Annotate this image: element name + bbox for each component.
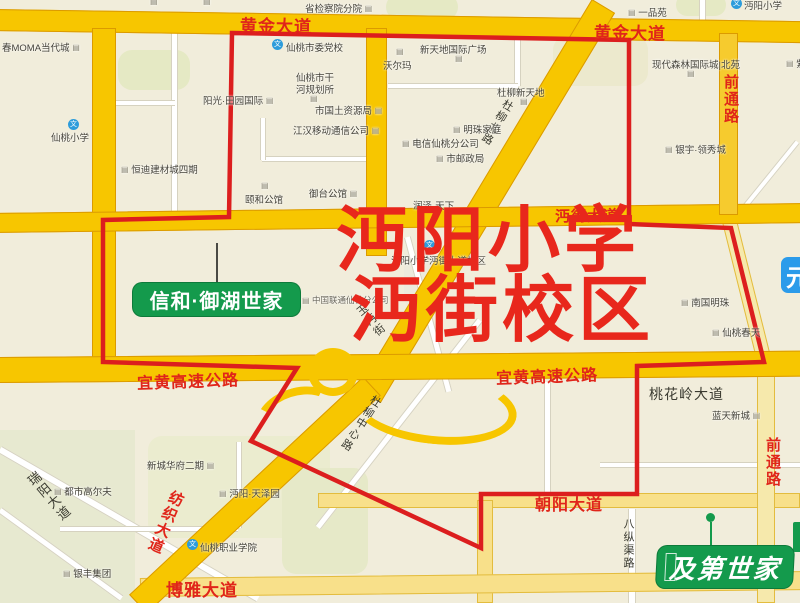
poi-label: ▤ 紫 bbox=[786, 56, 800, 70]
poi-label: 沔阳小学 bbox=[744, 0, 782, 12]
poi-label: 阳光·田园国际 ▤ bbox=[203, 93, 273, 107]
district-title-line2: 沔街校区 bbox=[350, 276, 654, 346]
road-label-boya-avenue: 博雅大道 bbox=[166, 576, 238, 601]
building-icon: ▤ bbox=[436, 155, 444, 163]
poi-label: 仙桃小学 bbox=[51, 130, 89, 144]
partial-blue-badge: 元 bbox=[781, 257, 800, 293]
road-label-huangjin-avenue: 黄金大道 bbox=[240, 11, 312, 37]
poi-label: 御台公馆 ▤ bbox=[309, 186, 357, 200]
road-label-qiantong-road-south: 前通路 bbox=[762, 437, 783, 488]
logo-seal bbox=[664, 553, 676, 581]
school-icon: 文 bbox=[187, 539, 198, 550]
poi-label: ▤ 沔阳·天泽园 bbox=[219, 486, 280, 500]
building-icon: ▤ bbox=[365, 5, 373, 13]
poi-label: ▤ bbox=[150, 0, 158, 8]
poi-label: ▤ bbox=[455, 54, 463, 65]
poi-label: ▤ 银宇·领秀城 bbox=[665, 142, 726, 156]
green-area bbox=[118, 50, 190, 90]
badge-pointer-line bbox=[216, 243, 218, 284]
building-icon: ▤ bbox=[786, 60, 794, 68]
poi-label: 仙桃市委党校 bbox=[286, 40, 343, 54]
building-icon: ▤ bbox=[203, 0, 211, 6]
partial-green-box bbox=[793, 522, 800, 552]
building-icon: ▤ bbox=[681, 299, 689, 307]
poi-label: 新城华府二期 ▤ bbox=[147, 458, 214, 472]
building-icon: ▤ bbox=[712, 329, 720, 337]
poi-label: 仙桃职业学院 bbox=[200, 540, 257, 554]
minor-road bbox=[113, 100, 175, 106]
poi-label: ▤ 市邮政局 bbox=[436, 151, 484, 165]
poi-label: ▤ 电信仙桃分公司 bbox=[402, 136, 479, 150]
building-icon: ▤ bbox=[520, 98, 528, 106]
poi-label: 春MOMA当代城 ▤ bbox=[2, 40, 80, 54]
building-icon: ▤ bbox=[261, 182, 269, 190]
poi-label: ▤ bbox=[396, 47, 404, 58]
building-icon: ▤ bbox=[628, 9, 636, 17]
building-icon: ▤ bbox=[753, 412, 761, 420]
vertical-road-west bbox=[92, 28, 116, 378]
building-icon: ▤ bbox=[375, 107, 383, 115]
road-qiantong-south bbox=[722, 218, 772, 365]
poi-label: 新天地国际广场 bbox=[420, 42, 487, 56]
building-icon: ▤ bbox=[63, 570, 71, 578]
road-label-yihuang-expressway: 宜黄高速公路 bbox=[137, 366, 240, 394]
road-label-chaoyang-avenue: 朝阳大道 bbox=[535, 491, 603, 515]
marker-line bbox=[710, 522, 712, 546]
poi-label: ▤ 都市高尔夫 bbox=[54, 484, 112, 498]
poi-label: 沃尔玛 bbox=[383, 58, 412, 72]
school-icon: 文 bbox=[731, 0, 742, 9]
building-icon: ▤ bbox=[302, 297, 310, 305]
road-label-yihuang-expressway: 宜黄高速公路 bbox=[496, 361, 599, 389]
minor-road bbox=[260, 118, 266, 160]
building-icon: ▤ bbox=[396, 48, 404, 56]
school-icon: 文 bbox=[68, 119, 79, 130]
poi-label: ▤ 明珠家庭 bbox=[453, 122, 501, 136]
poi-label: ▤ bbox=[520, 97, 528, 108]
minor-road bbox=[171, 30, 178, 218]
building-icon: ▤ bbox=[453, 126, 461, 134]
district-title: 沔阳小学 沔街校区 bbox=[336, 206, 654, 346]
building-icon: ▤ bbox=[687, 70, 695, 78]
building-icon: ▤ bbox=[350, 190, 358, 198]
poi-label: ▤ bbox=[261, 181, 269, 192]
road-label-taohualing-avenue: 桃花岭大道 bbox=[649, 384, 724, 404]
poi-label: ▤ 仙桃春天 bbox=[712, 325, 760, 339]
map-canvas: 黄金大道 黄金大道 前通路 沔街大道 宜黄高速公路 宜黄高速公路 桃花岭大道 前… bbox=[0, 0, 800, 603]
minor-road bbox=[544, 382, 551, 497]
poi-label: 颐和公馆 bbox=[245, 192, 283, 206]
district-title-line1: 沔阳小学 bbox=[336, 206, 654, 276]
poi-label: 市国土资源局 ▤ bbox=[315, 103, 382, 117]
building-icon: ▤ bbox=[665, 146, 673, 154]
minor-road bbox=[262, 156, 368, 162]
building-icon: ▤ bbox=[372, 127, 380, 135]
estate-logo-jidi: 及第世家 bbox=[656, 546, 794, 588]
building-icon: ▤ bbox=[402, 140, 410, 148]
building-icon: ▤ bbox=[54, 488, 62, 496]
road-label-bazongqu-road: 八纵渠路 bbox=[620, 518, 636, 570]
poi-label: ▤ 银丰集团 bbox=[63, 566, 111, 580]
building-icon: ▤ bbox=[72, 44, 80, 52]
poi-label: 省检察院分院 ▤ bbox=[305, 1, 372, 15]
building-icon: ▤ bbox=[219, 490, 227, 498]
building-icon: ▤ bbox=[455, 55, 463, 63]
road-label-qiantong-road-north: 前通路 bbox=[720, 74, 741, 125]
poi-label: ▤ bbox=[687, 69, 695, 80]
building-icon: ▤ bbox=[266, 97, 274, 105]
marker-dot bbox=[706, 513, 715, 522]
poi-label: ▤ bbox=[203, 0, 211, 8]
building-icon: ▤ bbox=[121, 166, 129, 174]
poi-label: 现代森林国际城|北苑 bbox=[652, 57, 740, 71]
school-icon: 文 bbox=[272, 39, 283, 50]
building-icon: ▤ bbox=[207, 462, 215, 470]
poi-label: ▤ 南国明珠 bbox=[681, 295, 729, 309]
poi-label: ▤ 恒迪建材城四期 bbox=[121, 162, 198, 176]
estate-logo-text: 及第世家 bbox=[668, 549, 782, 586]
poi-label: ▤ 一品苑 bbox=[628, 5, 667, 19]
poi-label: 蓝天新城 ▤ bbox=[712, 408, 760, 422]
estate-badge-xinhe: 信和·御湖世家 bbox=[133, 283, 300, 316]
building-icon: ▤ bbox=[150, 0, 158, 6]
road-label-huangjin-avenue: 黄金大道 bbox=[594, 18, 666, 44]
poi-label: 江汉移动通信公司 ▤ bbox=[293, 123, 379, 137]
